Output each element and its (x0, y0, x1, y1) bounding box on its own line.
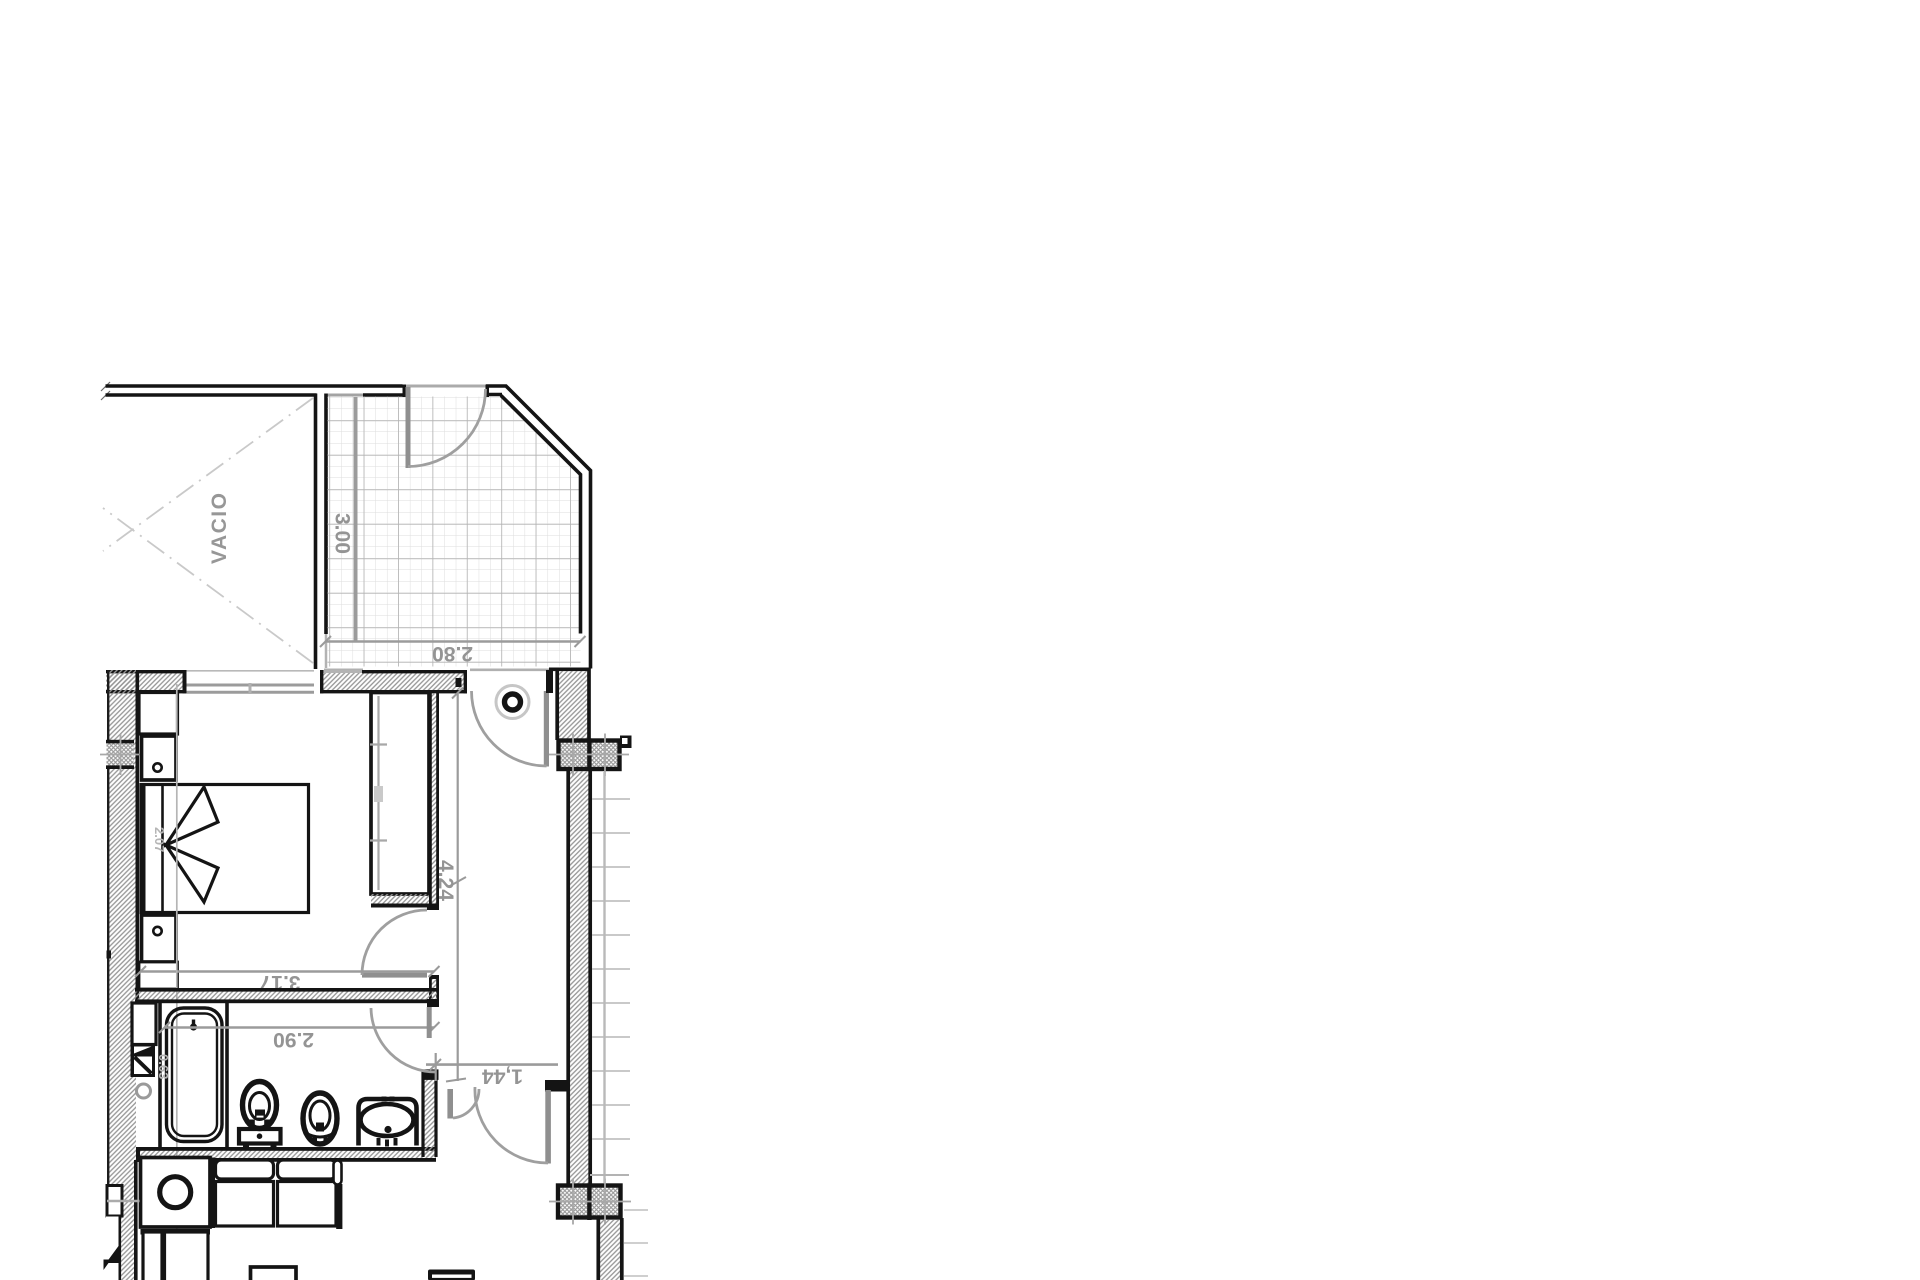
svg-text:4.24: 4.24 (434, 860, 457, 901)
svg-text:2.80: 2.80 (432, 642, 473, 665)
svg-text:2.07: 2.07 (152, 827, 167, 852)
svg-text:0.63: 0.63 (156, 1054, 171, 1079)
svg-text:1,44: 1,44 (482, 1065, 523, 1088)
svg-text:2.90: 2.90 (273, 1028, 314, 1051)
svg-text:3.00: 3.00 (331, 513, 354, 554)
svg-text:VACIO: VACIO (208, 492, 231, 564)
